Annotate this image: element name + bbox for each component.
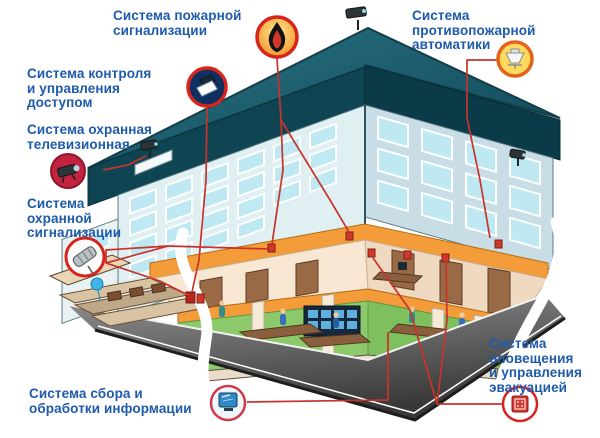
label-line: и управления — [489, 366, 582, 381]
label-line: сигнализации — [27, 226, 121, 241]
label-line: Система пожарной — [113, 9, 242, 24]
label-line: обработки информации — [29, 402, 192, 417]
label-line: Система сбора и — [29, 387, 192, 402]
label-line: противопожарной — [412, 24, 536, 39]
cctv-camera-icon — [51, 154, 85, 188]
label-security-alarm-system: Система охранной сигнализации — [27, 197, 121, 241]
roof-camera — [346, 7, 367, 30]
label-line: Система — [27, 197, 121, 212]
label-line: телевизионная — [27, 138, 152, 153]
label-fire-automation-system: Система противопожарной автоматики — [412, 9, 536, 53]
building-systems-diagram: Система пожарной сигнализации Система ко… — [0, 0, 600, 438]
label-line: автоматики — [412, 38, 536, 53]
motion-sensor-icon — [66, 238, 104, 276]
label-access-control-system: Система контроля и управления доступом — [27, 67, 151, 111]
label-line: и управления — [27, 82, 151, 97]
label-line: Система — [412, 9, 536, 24]
label-line: сигнализации — [113, 24, 242, 39]
label-line: оповещения — [489, 352, 582, 367]
label-line: Система контроля — [27, 67, 151, 82]
computer-monitor-icon — [211, 386, 245, 420]
label-fire-alarm-system: Система пожарной сигнализации — [113, 9, 242, 38]
label-info-processing-system: Система сбора и обработки информации — [29, 387, 192, 416]
label-line: Система охранная — [27, 123, 152, 138]
label-cctv-system: Система охранная телевизионная — [27, 123, 152, 152]
label-line: эвакуацией — [489, 381, 582, 396]
label-evacuation-system: Система оповещения и управления эвакуаци… — [489, 337, 582, 395]
label-line: охранной — [27, 212, 121, 227]
flame-icon — [257, 17, 297, 57]
label-line: доступом — [27, 96, 151, 111]
balloon — [91, 278, 103, 290]
label-line: Система — [489, 337, 582, 352]
card-reader-icon — [188, 68, 226, 106]
